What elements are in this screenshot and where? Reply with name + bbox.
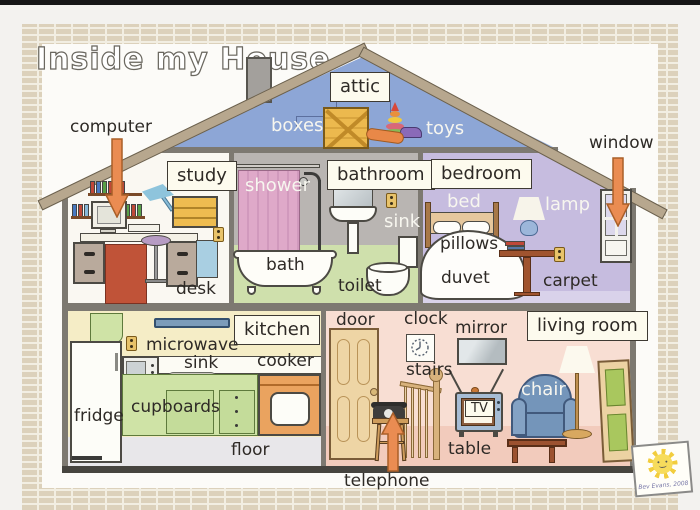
bedside-table-leg xyxy=(523,257,531,295)
fridge-base xyxy=(72,456,102,460)
back-door-pane xyxy=(605,369,626,407)
coffee-table-leg xyxy=(512,447,518,463)
boxes-label: boxes xyxy=(271,117,323,135)
sink-pedestal xyxy=(347,222,359,254)
attic-label: attic xyxy=(330,72,390,102)
sun-eye xyxy=(665,461,667,463)
page-title: Inside my House xyxy=(36,42,330,77)
bathroom-mirror xyxy=(333,189,373,207)
fridge-handle xyxy=(115,353,118,371)
cooker xyxy=(258,374,321,436)
power-outlet xyxy=(213,227,224,242)
window-arrow xyxy=(606,157,630,227)
pillows-label: pillows xyxy=(440,236,498,253)
cupboard-drawers xyxy=(219,390,255,434)
coffee-table-leg xyxy=(549,447,555,463)
fridge xyxy=(70,341,122,463)
bedroom-label: bedroom xyxy=(431,159,532,189)
armchair-arm xyxy=(511,398,527,436)
filing-cabinet xyxy=(172,196,218,228)
crate xyxy=(323,107,369,149)
drawer-handle xyxy=(84,270,95,274)
microwave-button xyxy=(151,364,154,367)
computer-callout-label: computer xyxy=(70,119,152,136)
sun-smile xyxy=(658,463,666,469)
lamp-label: lamp xyxy=(545,196,590,214)
floor-label: floor xyxy=(231,442,270,459)
bathtub-foot xyxy=(312,286,321,295)
toys-label: toys xyxy=(426,120,464,138)
door-panel xyxy=(357,396,370,442)
cooker-label: cooker xyxy=(257,353,314,370)
living-room-label: living room xyxy=(527,311,648,341)
window-lower-panel xyxy=(605,240,627,256)
scan-edge xyxy=(0,0,700,5)
wall-kitchen-living xyxy=(321,311,326,466)
poster: Inside my House xyxy=(0,0,700,510)
toy-pyramid-top xyxy=(391,102,399,111)
chair-label: chair xyxy=(521,381,566,399)
left-wall xyxy=(62,194,68,472)
door-label: door xyxy=(336,312,375,329)
duvet-label: duvet xyxy=(441,270,490,287)
computer-keyboard xyxy=(128,224,160,232)
power-outlet xyxy=(386,193,397,208)
stool-pole xyxy=(154,245,158,281)
door-knob xyxy=(370,388,378,396)
tv-knob xyxy=(497,408,500,411)
coffee-table-top xyxy=(507,439,567,447)
front-door xyxy=(329,328,379,460)
shower-label: shower xyxy=(245,177,310,195)
desk-pedestal-left xyxy=(73,242,105,284)
toilet-seat xyxy=(368,262,408,273)
sun-face xyxy=(652,453,674,475)
back-door-pane xyxy=(607,413,628,451)
drawer-handle xyxy=(177,271,188,275)
back-door-open xyxy=(597,359,634,463)
microwave-label: microwave xyxy=(146,337,239,354)
door-panel xyxy=(357,339,370,385)
telephone-callout-label: telephone xyxy=(344,473,430,490)
oven-door xyxy=(270,392,310,426)
tv-leg xyxy=(493,432,498,437)
stairs-label: stairs xyxy=(406,362,453,379)
toilet-label: toilet xyxy=(338,278,382,295)
living-mirror xyxy=(457,338,507,365)
bedside-table-foot xyxy=(514,292,540,296)
mirror-label: mirror xyxy=(455,320,507,337)
publisher-logo: Bev Evans, 2008 xyxy=(631,441,693,498)
floor-lamp-pole xyxy=(575,373,579,431)
study-side-chair xyxy=(196,240,218,278)
kitchen-wall-cupboard xyxy=(90,313,123,343)
drawer-handle xyxy=(177,252,188,256)
bathroom-sink-label: sink xyxy=(384,213,420,231)
window-callout-label: window xyxy=(589,135,654,152)
floor-lamp-base xyxy=(562,429,592,439)
bed-label: bed xyxy=(447,193,481,211)
power-outlet xyxy=(126,336,137,351)
tv-knob xyxy=(497,401,500,404)
drawer-knob xyxy=(235,396,238,399)
stair-newel-post xyxy=(433,376,440,460)
kitchen-sink-label: sink xyxy=(184,355,218,372)
telephone-arrow xyxy=(381,412,405,472)
drawer-handle xyxy=(84,252,95,256)
stool-foot xyxy=(145,279,167,283)
kitchen-label: kitchen xyxy=(234,315,320,345)
drawer-knob xyxy=(235,424,238,427)
shower-pipe-drop xyxy=(318,180,321,254)
desk-label: desk xyxy=(176,281,216,298)
bath-label: bath xyxy=(266,257,305,274)
clock-face xyxy=(407,335,433,360)
clock-frame xyxy=(406,334,435,362)
table-label: table xyxy=(448,441,491,458)
fridge-label: fridge xyxy=(74,408,124,425)
study-label: study xyxy=(167,161,237,191)
shower-rail xyxy=(236,164,320,168)
cooker-top-line xyxy=(260,384,319,386)
clock-label: clock xyxy=(404,311,448,328)
door-panel xyxy=(337,396,350,442)
desk-side-panel xyxy=(105,244,147,304)
sink-bowl xyxy=(329,206,377,222)
bedroom-lamp-base xyxy=(520,220,538,236)
tv-leg xyxy=(459,432,464,437)
extractor-hood xyxy=(154,318,230,328)
carpet-label: carpet xyxy=(543,273,598,290)
bathroom-label: bathroom xyxy=(327,160,435,190)
stair-spindle xyxy=(425,389,428,458)
computer-arrow xyxy=(105,138,129,218)
cupboards-label: cupboards xyxy=(131,399,220,416)
stair-spindle xyxy=(411,387,414,458)
stool-seat xyxy=(141,235,171,246)
filing-cabinet-drawer-line xyxy=(174,207,216,209)
power-outlet xyxy=(554,247,565,262)
drawer-knob xyxy=(235,410,238,413)
tv-label: TV xyxy=(465,400,494,417)
bookshelf-books xyxy=(72,200,90,216)
stair-spindle xyxy=(418,388,421,458)
bathtub-foot xyxy=(247,286,256,295)
door-panel xyxy=(337,339,350,385)
filing-cabinet-drawer-line xyxy=(174,217,216,219)
bedside-table-top xyxy=(499,250,555,257)
credit-text: Bev Evans, 2008 xyxy=(636,480,690,492)
sun-icon xyxy=(646,448,679,481)
